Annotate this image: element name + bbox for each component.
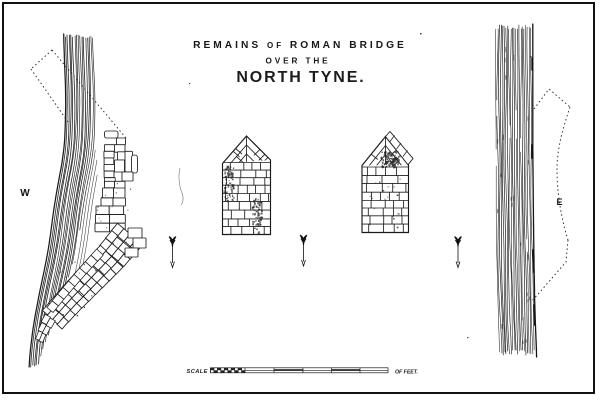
svg-text:OVER THE: OVER THE [265,57,330,66]
svg-text:NORTH TYNE.: NORTH TYNE. [236,69,365,86]
svg-text:OF FEET.: OF FEET. [395,369,418,375]
svg-text:W: W [20,188,30,199]
svg-text:SCALE: SCALE [187,369,208,375]
svg-text:E: E [556,197,562,207]
svg-text:REMAINS OF ROMAN BRIDGE: REMAINS OF ROMAN BRIDGE [193,40,407,51]
